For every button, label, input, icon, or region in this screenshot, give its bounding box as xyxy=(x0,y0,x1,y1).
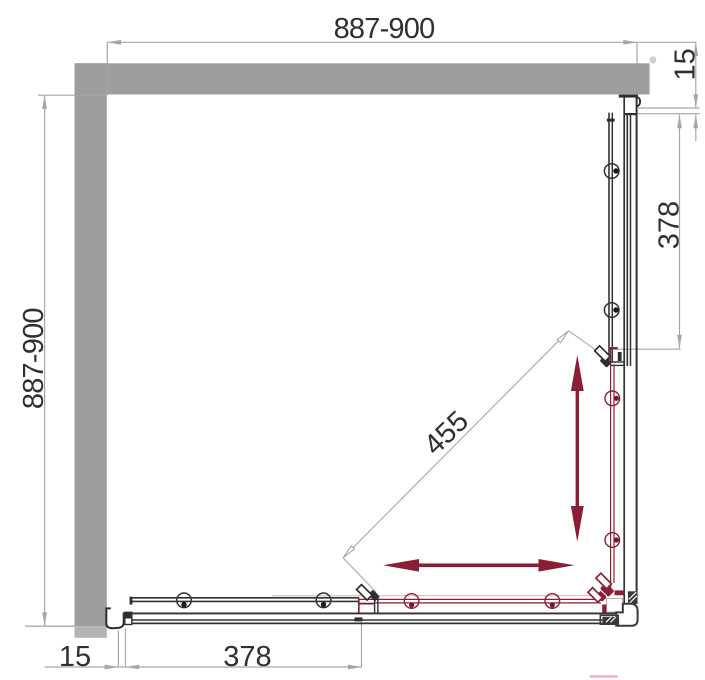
svg-text:887-900: 887-900 xyxy=(334,13,435,45)
svg-text:378: 378 xyxy=(654,201,686,249)
svg-text:887-900: 887-900 xyxy=(18,308,50,409)
svg-text:15: 15 xyxy=(59,641,91,673)
svg-text:378: 378 xyxy=(223,641,271,673)
svg-text:15: 15 xyxy=(669,48,701,80)
